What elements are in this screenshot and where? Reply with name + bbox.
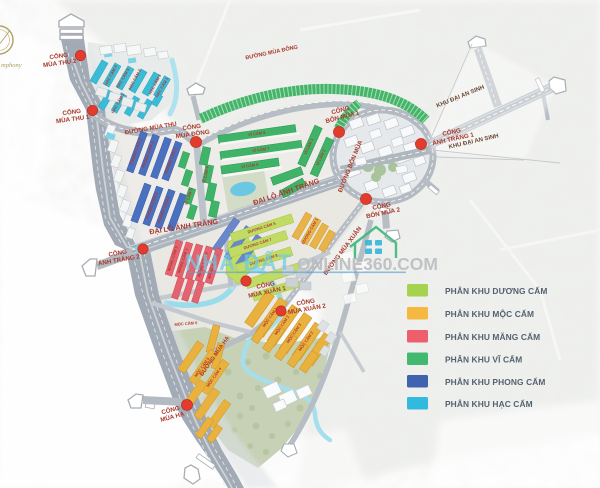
svg-text:PHÂN KHU VĨ CẤM: PHÂN KHU VĨ CẤM [445, 354, 522, 365]
svg-text:PHÂN KHU PHONG CẤM: PHÂN KHU PHONG CẤM [445, 376, 545, 387]
svg-text:NHÀ ĐẤT: NHÀ ĐẤT [185, 250, 292, 275]
svg-text:mphony: mphony [1, 62, 22, 69]
svg-text:PHÂN KHU MĂNG CẤM: PHÂN KHU MĂNG CẤM [445, 331, 540, 342]
svg-text:PHÂN KHU HẠC CẤM: PHÂN KHU HẠC CẤM [445, 398, 533, 409]
svg-text:PHÂN KHU MỘC CẤM: PHÂN KHU MỘC CẤM [445, 308, 534, 319]
svg-text:PHÂN KHU DƯƠNG CẤM: PHÂN KHU DƯƠNG CẤM [445, 285, 547, 296]
svg-text:ONLINE360.COM: ONLINE360.COM [297, 254, 438, 274]
